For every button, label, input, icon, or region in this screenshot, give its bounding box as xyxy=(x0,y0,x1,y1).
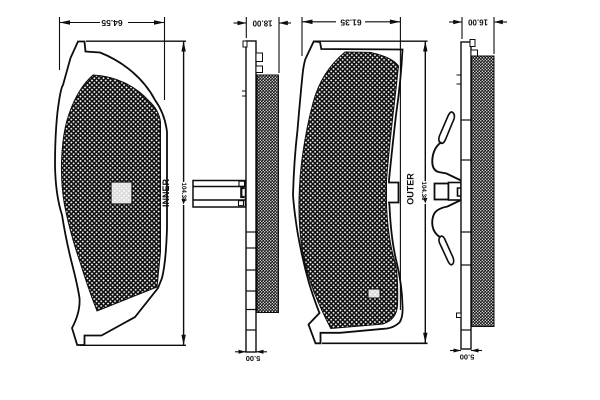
svg-text:64.55: 64.55 xyxy=(101,18,123,28)
svg-text:104.38: 104.38 xyxy=(180,183,187,202)
svg-text:5.00: 5.00 xyxy=(246,354,261,363)
svg-text:61.35: 61.35 xyxy=(340,17,362,27)
svg-text:104.38: 104.38 xyxy=(420,182,427,201)
svg-text:18.00: 18.00 xyxy=(252,19,273,28)
svg-text:16.00: 16.00 xyxy=(467,18,488,27)
svg-text:INNER: INNER xyxy=(161,179,171,208)
svg-text:OUTER: OUTER xyxy=(406,173,416,205)
svg-text:5.00: 5.00 xyxy=(460,353,475,362)
